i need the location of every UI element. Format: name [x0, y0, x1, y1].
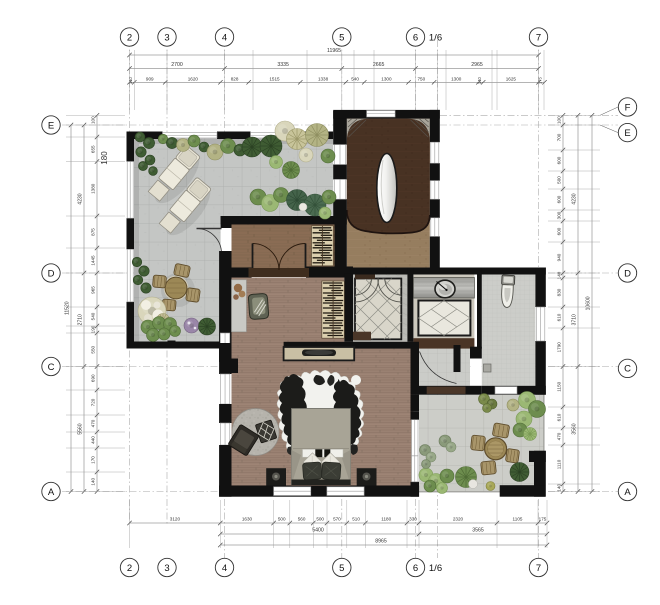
svg-text:8965: 8965 — [375, 539, 387, 545]
svg-text:470: 470 — [91, 419, 96, 427]
svg-text:720: 720 — [91, 398, 96, 406]
svg-text:D: D — [48, 268, 55, 279]
svg-text:940: 940 — [557, 253, 562, 261]
svg-text:E: E — [624, 128, 630, 139]
svg-text:1/6: 1/6 — [429, 33, 442, 44]
svg-text:750: 750 — [417, 77, 425, 82]
svg-text:1/6: 1/6 — [429, 563, 442, 574]
svg-text:3710: 3710 — [572, 314, 578, 325]
svg-text:1300: 1300 — [451, 77, 462, 82]
svg-text:470: 470 — [557, 432, 562, 440]
svg-text:2710: 2710 — [78, 314, 84, 325]
svg-text:A: A — [48, 487, 55, 498]
svg-text:4230: 4230 — [78, 193, 84, 204]
svg-text:1625: 1625 — [506, 77, 517, 82]
svg-text:2665: 2665 — [373, 62, 385, 68]
svg-text:A: A — [624, 487, 631, 498]
svg-text:2700: 2700 — [171, 62, 183, 68]
svg-text:2: 2 — [127, 563, 132, 574]
svg-text:2: 2 — [127, 32, 132, 43]
svg-text:875: 875 — [91, 228, 96, 236]
svg-text:830: 830 — [557, 288, 562, 296]
svg-text:540: 540 — [351, 77, 359, 82]
svg-text:600: 600 — [557, 156, 562, 164]
svg-text:300: 300 — [557, 211, 562, 219]
svg-text:10600: 10600 — [586, 296, 592, 310]
svg-text:1620: 1620 — [188, 77, 199, 82]
svg-text:1180: 1180 — [381, 517, 391, 522]
svg-text:3335: 3335 — [277, 62, 289, 68]
svg-text:C: C — [48, 362, 55, 373]
svg-text:170: 170 — [91, 456, 96, 464]
svg-text:100: 100 — [557, 116, 562, 124]
svg-text:175: 175 — [539, 517, 547, 522]
svg-text:655: 655 — [91, 145, 96, 153]
svg-text:540: 540 — [91, 312, 96, 320]
svg-text:7: 7 — [536, 32, 541, 43]
svg-text:140: 140 — [557, 483, 562, 491]
svg-text:965: 965 — [91, 286, 96, 294]
svg-text:500: 500 — [557, 176, 562, 184]
svg-text:1105: 1105 — [513, 517, 523, 522]
svg-text:2965: 2965 — [471, 62, 483, 68]
svg-text:690: 690 — [91, 374, 96, 382]
svg-text:909: 909 — [146, 77, 154, 82]
svg-text:3: 3 — [164, 32, 169, 43]
svg-text:3565: 3565 — [472, 528, 484, 534]
svg-text:330: 330 — [409, 517, 417, 522]
svg-text:1300: 1300 — [381, 77, 392, 82]
svg-text:610: 610 — [557, 313, 562, 321]
svg-text:610: 610 — [557, 413, 562, 421]
svg-text:1445: 1445 — [91, 255, 96, 266]
svg-text:828: 828 — [231, 77, 239, 82]
svg-text:510: 510 — [352, 517, 360, 522]
svg-text:3: 3 — [164, 563, 169, 574]
svg-text:1630: 1630 — [242, 517, 253, 522]
svg-text:C: C — [624, 364, 631, 375]
svg-text:4: 4 — [222, 563, 227, 574]
svg-text:5560: 5560 — [78, 423, 84, 434]
svg-text:1338: 1338 — [318, 77, 329, 82]
svg-text:1515: 1515 — [269, 77, 280, 82]
svg-text:3560: 3560 — [572, 423, 578, 434]
svg-text:550: 550 — [91, 345, 96, 353]
svg-text:600: 600 — [557, 195, 562, 203]
svg-text:100: 100 — [91, 116, 96, 124]
svg-text:1110: 1110 — [557, 459, 562, 469]
svg-text:190: 190 — [91, 325, 96, 333]
svg-text:5: 5 — [339, 32, 344, 43]
svg-text:140: 140 — [128, 76, 133, 84]
svg-text:500: 500 — [278, 517, 286, 522]
svg-text:700: 700 — [557, 133, 562, 141]
svg-text:1150: 1150 — [557, 381, 562, 391]
svg-text:4230: 4230 — [572, 193, 578, 204]
svg-text:500: 500 — [316, 517, 324, 522]
svg-text:E: E — [48, 120, 54, 131]
svg-text:140: 140 — [91, 477, 96, 485]
svg-text:5: 5 — [339, 563, 344, 574]
svg-text:F: F — [625, 102, 631, 113]
svg-text:600: 600 — [557, 227, 562, 235]
svg-text:175: 175 — [538, 76, 543, 84]
svg-text:140: 140 — [477, 76, 482, 84]
svg-text:5400: 5400 — [312, 528, 324, 534]
svg-text:570: 570 — [333, 517, 341, 522]
svg-text:11965: 11965 — [327, 48, 341, 54]
svg-text:1380: 1380 — [91, 183, 96, 194]
svg-text:440: 440 — [91, 436, 96, 444]
svg-text:6: 6 — [413, 32, 418, 43]
svg-text:11520: 11520 — [65, 301, 71, 315]
svg-text:6: 6 — [413, 563, 418, 574]
svg-text:3120: 3120 — [170, 517, 181, 522]
svg-text:D: D — [624, 268, 631, 279]
svg-text:560: 560 — [298, 517, 306, 522]
svg-text:1790: 1790 — [557, 342, 562, 353]
svg-text:4: 4 — [222, 32, 227, 43]
svg-text:7: 7 — [536, 563, 541, 574]
svg-text:180: 180 — [100, 151, 109, 165]
svg-text:2320: 2320 — [453, 517, 464, 522]
